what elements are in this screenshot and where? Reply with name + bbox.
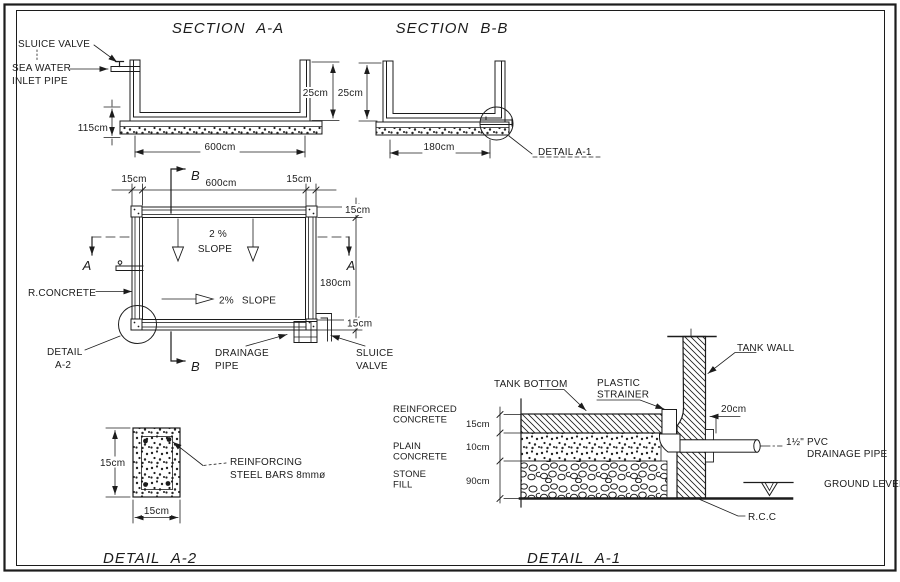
section-aa: SECTION A-A SLUICE VALVE SEA WATER INLET… [12,20,339,157]
ground-level-symbol [744,483,793,496]
sluice-label-line1: SLUICE [356,348,393,359]
section-bb-tank [376,61,509,135]
sluice-label-line2: VALVE [356,361,388,372]
reinforcing-label-line2: STEEL BARS 8mmø [230,470,325,481]
dim-wall-offset: 20cm [710,404,746,433]
dim-rc-label: 15cm [466,419,490,430]
slope-horiz-label: 2% SLOPE [219,296,276,307]
pvc-pipe-label-line2: DRAINAGE PIPE [807,449,888,460]
section-aa-dim-width: 600cm [135,136,305,157]
drawing-sheet: SECTION A-A SLUICE VALVE SEA WATER INLET… [0,0,900,577]
section-aa-tank [120,60,322,134]
section-bb-dim-height: 25cm [337,63,381,121]
stone-label-line1: STONE [393,469,426,480]
svg-text:B: B [191,359,200,374]
reinforcing-leader [173,442,226,466]
sea-water-label: SEA WATER [12,63,71,74]
reinforcing-label-line1: REINFORCING [230,457,302,468]
rcc-label: R.C.C [748,512,776,523]
detail-a1-title: DETAIL A-1 [527,550,621,567]
plan-walls [132,207,316,330]
detail-a2-leader [85,336,120,350]
section-bb-dim-width: 180cm [390,140,490,158]
strainer-elbow [660,434,681,452]
dim-plain-label: 10cm [466,442,490,453]
detail-a2-title: DETAIL A-2 [103,550,197,567]
inlet-pipe-and-valve [111,62,140,72]
drainage-label-line1: DRAINAGE [215,348,269,359]
svg-text:180cm: 180cm [320,278,351,289]
drainage-pipe-leader [246,335,287,347]
dim-stone-label: 90cm [466,476,490,487]
ground-level-label: GROUND LEVEL [824,479,900,490]
slope-word-label: SLOPE [198,244,232,255]
svg-text:15cm: 15cm [345,205,370,216]
reinforced-concrete-layer [521,414,662,433]
sluice-valve-label: SLUICE VALVE [18,39,90,50]
detail-a1-leader [509,136,532,154]
svg-text:A: A [82,258,92,273]
pvc-drainage-pipe [680,440,782,452]
svg-text:25cm: 25cm [303,88,328,99]
detail-a2-callout-line2: A-2 [55,360,71,371]
inlet-pipe-label: INLET PIPE [12,76,68,87]
plain-label-line1: PLAIN [393,441,421,452]
section-marker-a-right: A [318,237,355,273]
plan-corner-keys [131,206,317,330]
slope-pct-label: 2 % [209,229,227,240]
svg-text:115cm: 115cm [78,123,108,134]
section-aa-dim-height: 25cm [302,62,339,121]
plain-concrete-layer [521,433,661,461]
tank-bottom-leader [540,390,586,411]
section-marker-a-left: A [82,237,131,273]
svg-text:25cm: 25cm [338,88,363,99]
svg-text:600cm: 600cm [205,178,236,189]
detail-a2: 15cm 15cm REINFORCING STEEL BARS 8mmø DE… [97,428,325,567]
svg-text:15cm: 15cm [347,319,372,330]
engineering-drawing: SECTION A-A SLUICE VALVE SEA WATER INLET… [0,0,900,577]
svg-text:15cm: 15cm [100,458,125,469]
section-bb-title: SECTION B-B [396,20,509,37]
pvc-pipe-label-line1: 1½" PVC [786,437,828,448]
reinforced-label-line2: CONCRETE [393,415,447,426]
stone-fill-layer [521,461,667,498]
detail-a2-callout-line1: DETAIL [47,347,83,358]
plan-sluice-valve-fitting [116,261,143,271]
svg-text:15cm: 15cm [144,506,169,517]
svg-text:180cm: 180cm [423,142,454,153]
reinforced-label-line1: REINFORCED [393,404,457,415]
tank-bottom-label: TANK BOTTOM [494,379,568,390]
slope-arrow-horizontal [162,294,213,304]
svg-text:A: A [346,258,356,273]
detail-a2-dim-width: 15cm [133,500,180,523]
plain-label-line2: CONCRETE [393,452,447,463]
svg-text:20cm: 20cm [721,404,746,415]
detail-a1: REINFORCED CONCRETE 15cm PLAIN CONCRETE … [393,329,900,567]
stone-label-line2: FILL [393,480,412,491]
section-aa-dim-base: 115cm [78,100,120,145]
concrete-section [133,428,180,497]
svg-text:600cm: 600cm [204,142,235,153]
rcc-leader [700,500,745,517]
plastic-strainer-label-line1: PLASTIC [597,378,640,389]
svg-text:B: B [191,168,200,183]
section-bb: SECTION B-B DETAIL A-1 25cm 180cm [337,20,600,158]
plan-view: B B 15cm 600cm 15cm 15cm 180cm 15cm [28,168,393,374]
svg-text:15cm: 15cm [121,174,146,185]
plastic-strainer-leader [597,400,664,409]
section-aa-title: SECTION A-A [172,20,284,37]
tank-wall-leader [708,353,756,374]
section-marker-b-bottom: B [171,332,200,374]
detail-a2-dim-height: 15cm [97,428,130,497]
r-concrete-label: R.CONCRETE [28,288,96,299]
plan-dim-top: 15cm 600cm 15cm [112,174,336,205]
plastic-strainer-label-line2: STRAINER [597,390,649,401]
plan-sluice-valve-leader [331,336,365,347]
plan-dim-right: 15cm 180cm 15cm [318,198,372,338]
svg-text:15cm: 15cm [286,174,311,185]
drainage-label-line2: PIPE [215,361,239,372]
detail-a1-callout: DETAIL A-1 [538,147,592,158]
detail-a1-dim-column [497,407,521,503]
section-marker-b-top: B [171,168,200,213]
plastic-strainer-body [662,410,677,435]
